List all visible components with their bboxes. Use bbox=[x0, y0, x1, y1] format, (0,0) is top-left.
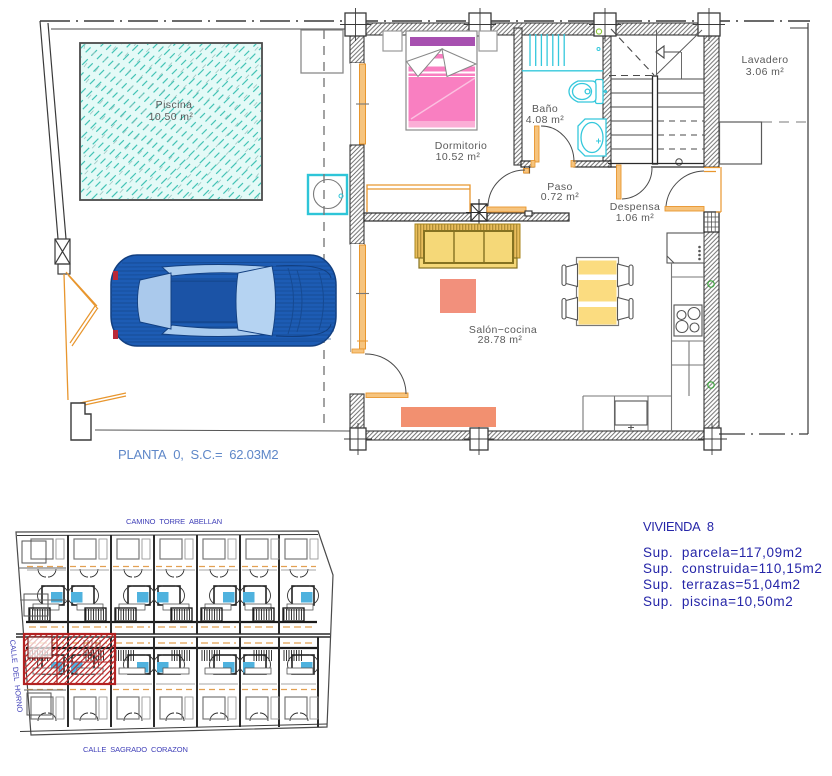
svg-text:28.78 m²: 28.78 m² bbox=[478, 334, 523, 346]
svg-text:VIVIENDA 8: VIVIENDA 8 bbox=[643, 519, 714, 534]
svg-text:Sup. construida=110,15m2: Sup. construida=110,15m2 bbox=[643, 561, 823, 576]
svg-text:0.72 m²: 0.72 m² bbox=[541, 191, 579, 203]
svg-text:4.08 m²: 4.08 m² bbox=[526, 114, 564, 126]
svg-text:10.50 m²: 10.50 m² bbox=[149, 111, 194, 123]
svg-text:Sup. terrazas=51,04m2: Sup. terrazas=51,04m2 bbox=[643, 577, 801, 592]
svg-text:Lavadero: Lavadero bbox=[742, 54, 789, 66]
svg-text:1.06 m²: 1.06 m² bbox=[616, 212, 654, 224]
svg-text:CAMINO TORRE ABELLAN: CAMINO TORRE ABELLAN bbox=[126, 517, 222, 526]
svg-text:10.52 m²: 10.52 m² bbox=[436, 151, 481, 163]
svg-text:Sup. parcela=117,09m2: Sup. parcela=117,09m2 bbox=[643, 545, 803, 560]
svg-text:Piscina: Piscina bbox=[156, 99, 193, 111]
svg-text:3.06 m²: 3.06 m² bbox=[746, 66, 784, 78]
svg-text:CALLE SAGRADO CORAZON: CALLE SAGRADO CORAZON bbox=[83, 745, 188, 754]
svg-text:Sup. piscina=10,50m2: Sup. piscina=10,50m2 bbox=[643, 594, 793, 609]
svg-text:PLANTA 0, S.C.= 62.03M2: PLANTA 0, S.C.= 62.03M2 bbox=[118, 447, 278, 462]
